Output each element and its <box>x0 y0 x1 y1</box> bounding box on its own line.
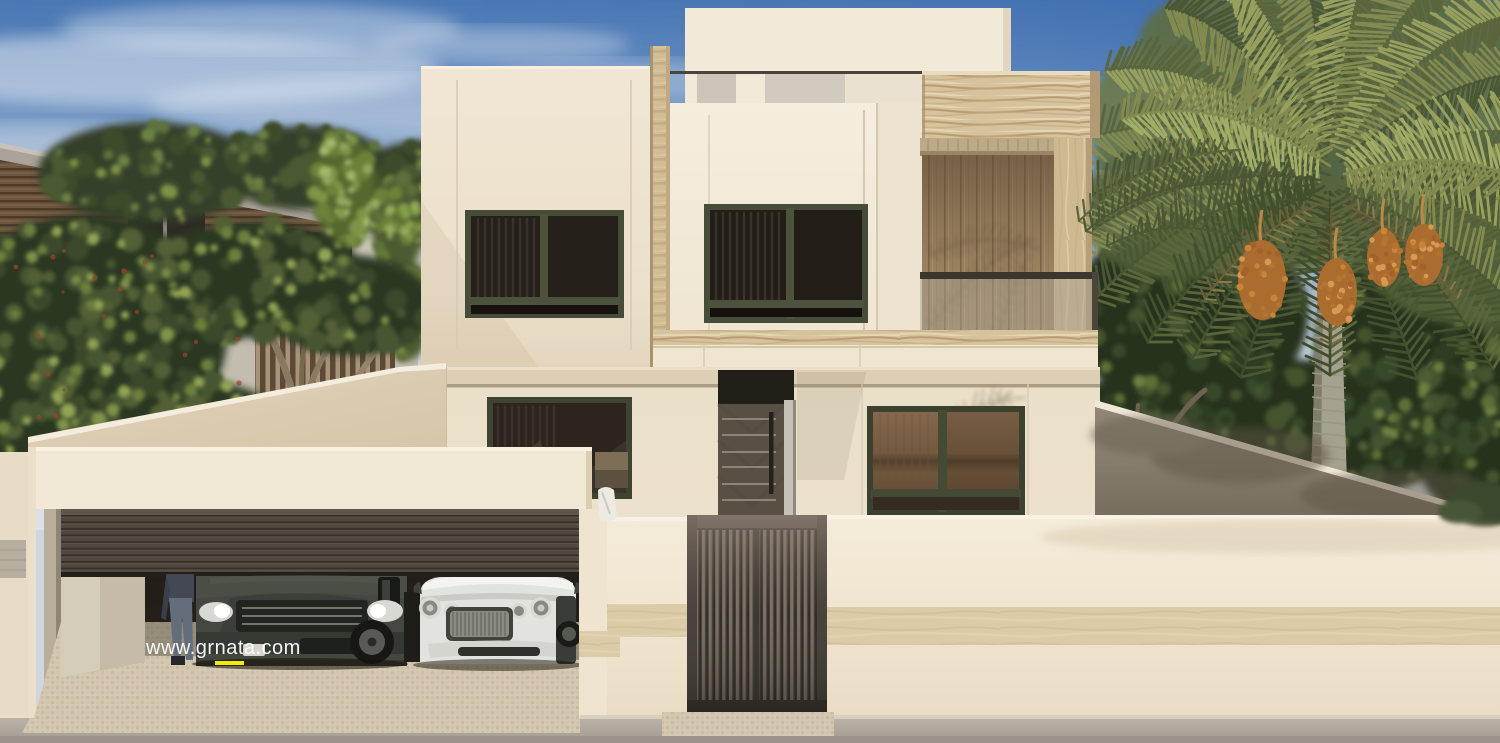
svg-text:www.grnata.com: www.grnata.com <box>145 637 301 659</box>
